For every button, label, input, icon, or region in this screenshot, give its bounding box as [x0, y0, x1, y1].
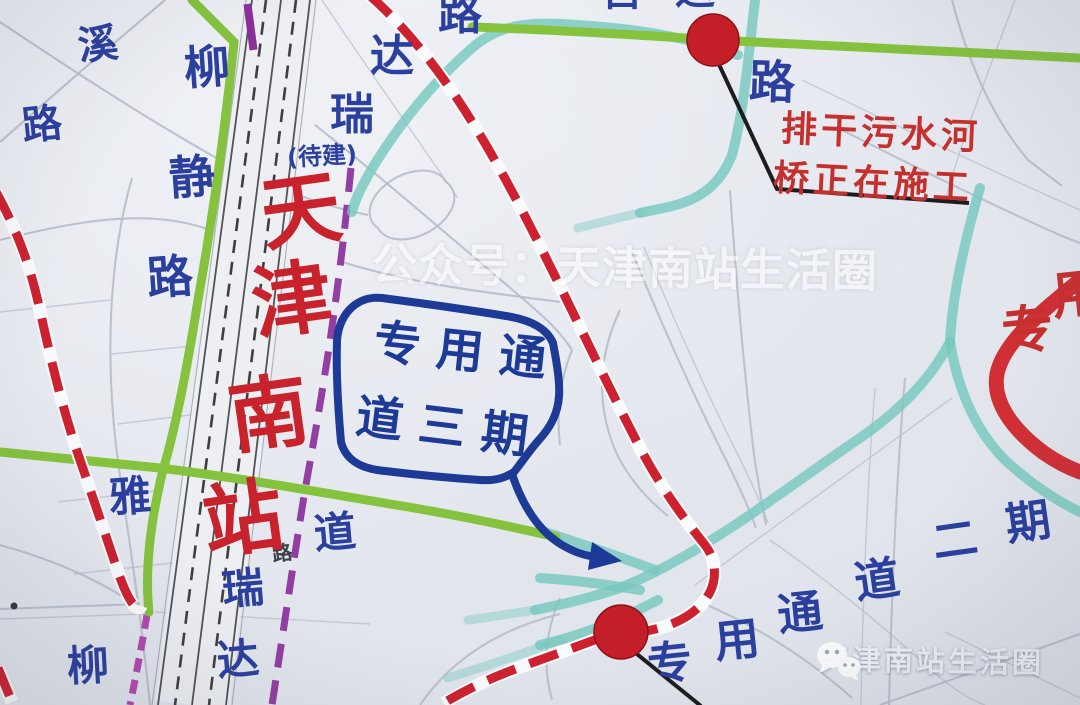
road-label-jing: 静: [167, 152, 216, 201]
road-label-ya: 雅: [108, 475, 153, 520]
road-label-da-top: 达: [370, 35, 414, 79]
road-label-lu-xi: 路: [20, 103, 64, 147]
construction-note-line1: 排干污水河: [780, 112, 981, 157]
station-name-char-jin: 津: [247, 256, 337, 346]
map-dot: [11, 603, 18, 610]
phase2-char-er: 二: [930, 515, 981, 566]
phase2-char-yong: 用: [712, 615, 761, 664]
construction-node-bottom: [594, 605, 648, 659]
phase1-edge-char-zhuan: 专: [999, 302, 1056, 359]
top-partial-char-1: 自: [602, 0, 642, 12]
road-label-lu-jing: 路: [145, 252, 194, 301]
road-label-da-mid: 达: [215, 637, 261, 683]
top-partial-char-2: 运: [675, 0, 715, 10]
phase2-char-dao: 道: [852, 555, 903, 606]
road-label-xi: 溪: [76, 23, 120, 67]
map-photo: 柳 静 路 溪 路 路 达 瑞 (待建) 道 瑞 达 雅 柳 路 路 自 运 天…: [0, 0, 1080, 705]
road-label-rui-mid: 瑞: [220, 566, 266, 612]
station-name-char-tian: 天: [256, 167, 346, 257]
road-label-lu-top: 路: [438, 0, 482, 37]
road-label-liu-top: 柳: [182, 42, 231, 91]
phase2-char-tong: 通: [775, 588, 824, 637]
corner-watermark: 天津南站生活圈: [812, 638, 1044, 680]
construction-note-line2: 桥正在施工: [772, 161, 974, 207]
phase2-char-qi: 期: [1003, 497, 1054, 548]
station-name-char-zhan: 站: [198, 475, 288, 565]
phase1-edge-char-yong: 用: [1049, 266, 1080, 323]
construction-node-top: [687, 14, 739, 66]
road-label-liu-bottom: 柳: [66, 644, 110, 688]
center-watermark: 公众号：天津南站生活圈: [372, 228, 879, 300]
road-label-lu-right: 路: [748, 58, 796, 106]
phase2-char-zhuan: 专: [645, 638, 694, 687]
road-label-dao-mid: 道: [312, 510, 358, 556]
road-label-rui-top: 瑞: [330, 93, 374, 137]
station-name-char-nan: 南: [224, 370, 314, 460]
